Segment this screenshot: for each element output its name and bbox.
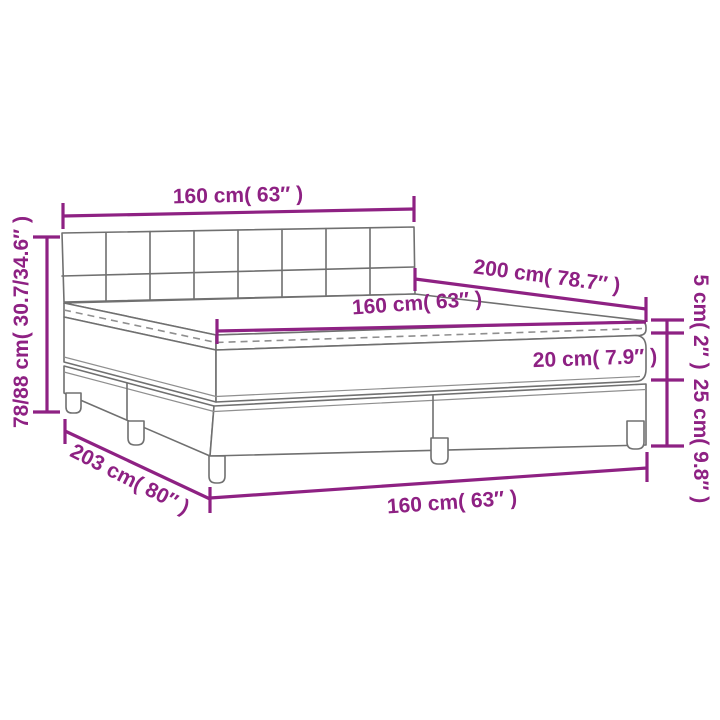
dim-label-diagonal-length: 203 cm( 80″ ) bbox=[67, 440, 194, 520]
dim-bottom-width: 160 cm( 63″ ) bbox=[210, 452, 647, 519]
dim-label-mattress-height: 20 cm( 7.9″ ) bbox=[532, 345, 657, 372]
dim-label-bottom-width: 160 cm( 63″ ) bbox=[386, 486, 518, 518]
dim-top-width: 160 cm( 63″ ) bbox=[63, 183, 414, 229]
dimension-diagram: 160 cm( 63″ ) 78/88 cm( 30.7/34.6″ ) 200… bbox=[0, 0, 720, 720]
dim-label-top-width: 160 cm( 63″ ) bbox=[173, 183, 304, 209]
dim-top-width-line bbox=[63, 209, 414, 216]
bed-leg bbox=[128, 421, 144, 445]
diagram-canvas: 160 cm( 63″ ) 78/88 cm( 30.7/34.6″ ) 200… bbox=[0, 0, 720, 720]
bed-leg bbox=[209, 456, 225, 483]
headboard bbox=[62, 227, 415, 302]
dim-label-left-height: 78/88 cm( 30.7/34.6″ ) bbox=[10, 216, 33, 428]
bed-leg bbox=[66, 393, 81, 413]
dim-label-length: 200 cm( 78.7″ ) bbox=[472, 255, 622, 297]
bed-leg bbox=[627, 421, 644, 449]
dim-label-base-height: 25 cm( 9.8″ ) bbox=[689, 379, 712, 503]
dim-left-height: 78/88 cm( 30.7/34.6″ ) bbox=[10, 216, 60, 428]
dim-label-topper-height: 5 cm( 2″ ) bbox=[689, 274, 712, 369]
bed-leg bbox=[431, 438, 448, 464]
